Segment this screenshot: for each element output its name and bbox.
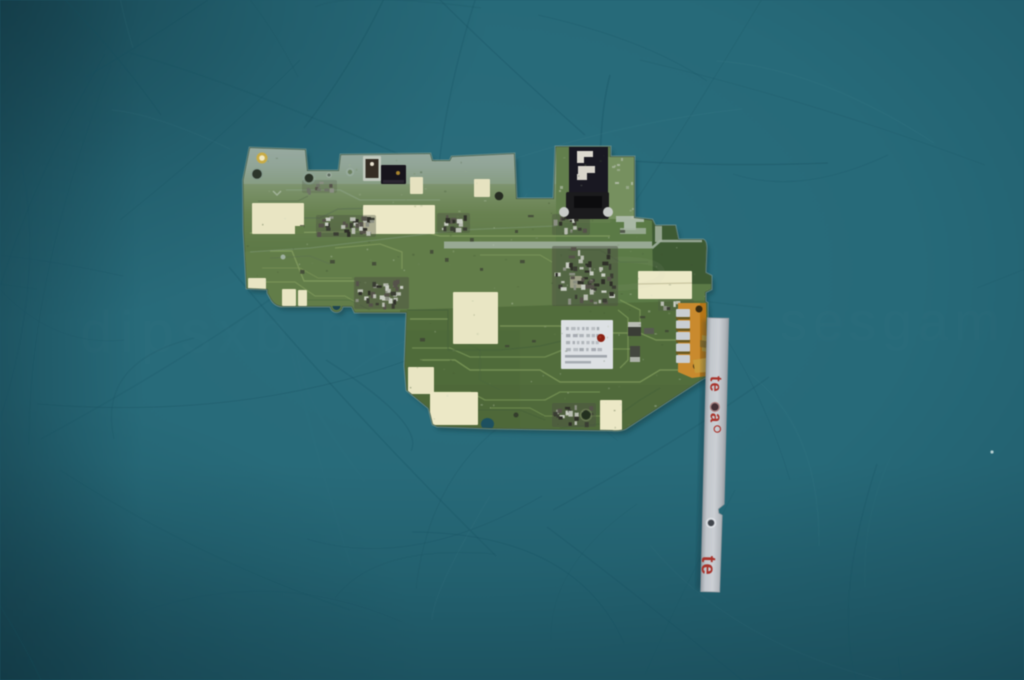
svg-text:a: a	[706, 413, 724, 423]
svg-text:te: te	[706, 376, 724, 393]
svg-text:sesgam: sesgam	[780, 292, 1005, 352]
svg-text:te: te	[697, 556, 719, 576]
